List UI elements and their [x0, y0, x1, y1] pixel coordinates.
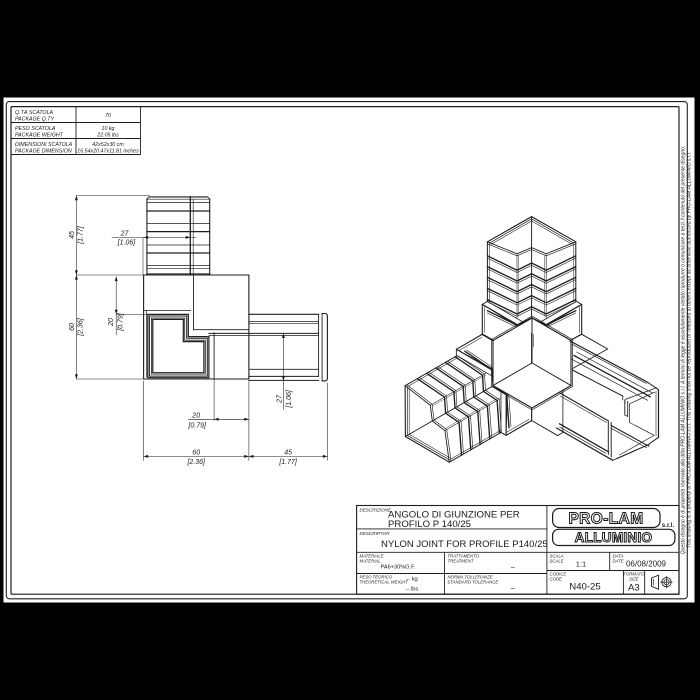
svg-text:27: 27: [277, 394, 284, 404]
svg-text:-- kg: -- kg: [406, 577, 418, 583]
svg-text:[1.77]: [1.77]: [278, 459, 298, 466]
svg-text:ALLUMINIO: ALLUMINIO: [575, 530, 653, 545]
svg-text:06/08/2009: 06/08/2009: [626, 560, 667, 569]
svg-text:A3: A3: [628, 583, 640, 594]
svg-text:70: 70: [105, 113, 111, 119]
svg-text:PACKAGE Q.TY: PACKAGE Q.TY: [15, 116, 55, 122]
svg-text:TREATMENT: TREATMENT: [448, 558, 474, 563]
svg-text:20: 20: [191, 412, 200, 419]
svg-text:[2.36]: [2.36]: [78, 317, 85, 337]
svg-text:–: –: [511, 565, 515, 572]
svg-text:DIMENSIONI SCATOLA: DIMENSIONI SCATOLA: [15, 142, 73, 148]
svg-text:DESCRIZIONE: DESCRIZIONE: [360, 508, 392, 513]
svg-text:DATE: DATE: [613, 558, 624, 563]
svg-text:10 kg: 10 kg: [102, 126, 115, 132]
svg-text:NYLON JOINT FOR PROFILE P140/2: NYLON JOINT FOR PROFILE P140/25: [381, 539, 548, 550]
svg-text:This drawing is a property of: This drawing is a property of PRO-LAM AL…: [687, 152, 693, 548]
svg-text:42x52x30 cm: 42x52x30 cm: [92, 142, 124, 148]
svg-text:[1.06]: [1.06]: [286, 389, 293, 409]
svg-text:60: 60: [69, 323, 76, 331]
svg-text:PA6+30%G.F.: PA6+30%G.F.: [381, 565, 416, 571]
svg-text:Q.TÀ SCATOLA: Q.TÀ SCATOLA: [15, 109, 54, 116]
svg-text:N40-25: N40-25: [569, 582, 600, 593]
svg-text:-- lbs: -- lbs: [406, 587, 419, 593]
svg-text:SIZE: SIZE: [629, 577, 639, 582]
svg-text:PROFILO P 140/25: PROFILO P 140/25: [388, 519, 471, 530]
svg-text:16,54x20.47x11.81 inches: 16,54x20.47x11.81 inches: [77, 148, 139, 154]
svg-text:45: 45: [284, 449, 292, 456]
svg-text:s.r.l.: s.r.l.: [662, 522, 675, 529]
svg-text:[2.36]: [2.36]: [186, 459, 206, 466]
svg-text:22.05 lbs: 22.05 lbs: [96, 132, 119, 138]
svg-text:[1.77]: [1.77]: [78, 225, 85, 245]
svg-text:[1.06]: [1.06]: [117, 239, 137, 246]
svg-text:DESCRIPTOR: DESCRIPTOR: [360, 531, 391, 536]
svg-text:–: –: [511, 586, 515, 593]
svg-text:PESO SCATOLA: PESO SCATOLA: [15, 126, 56, 132]
svg-text:27: 27: [120, 230, 130, 237]
svg-text:45: 45: [69, 231, 76, 239]
svg-text:SCALE: SCALE: [550, 558, 564, 563]
svg-text:[0.79]: [0.79]: [187, 422, 207, 429]
svg-text:PACKAGE WEIGHT: PACKAGE WEIGHT: [15, 132, 64, 138]
svg-text:MATERIAL: MATERIAL: [360, 558, 382, 563]
svg-text:[0.79]: [0.79]: [117, 312, 124, 332]
svg-text:CODE: CODE: [550, 577, 563, 582]
svg-text:STANDARD TOLERANCE: STANDARD TOLERANCE: [448, 580, 499, 585]
svg-text:PRO-LAM: PRO-LAM: [568, 511, 643, 528]
svg-text:PACKAGE DIMENSION: PACKAGE DIMENSION: [15, 148, 72, 154]
svg-text:20: 20: [108, 318, 115, 327]
svg-text:1:1: 1:1: [576, 560, 586, 569]
svg-text:60: 60: [192, 449, 200, 456]
svg-text:THEORETICAL WEIGHT: THEORETICAL WEIGHT: [360, 580, 409, 585]
